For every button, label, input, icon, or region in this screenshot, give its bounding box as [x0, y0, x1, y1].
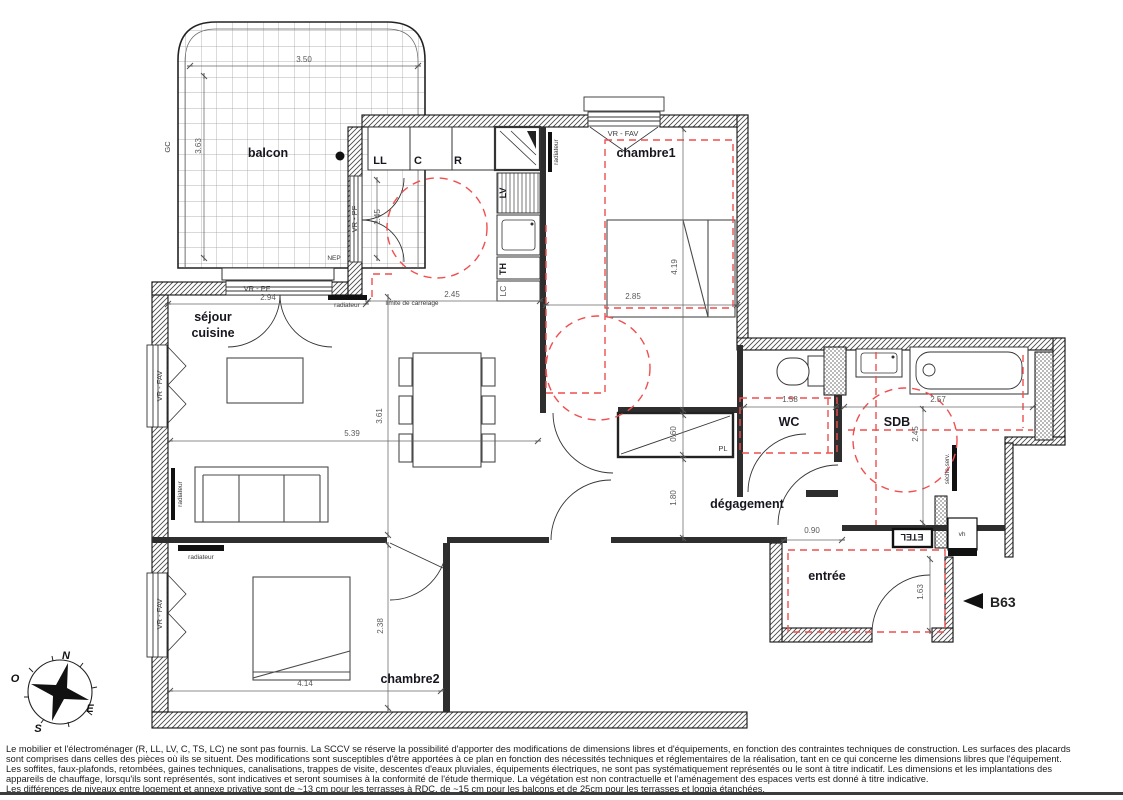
label-pl: PL: [718, 444, 727, 453]
label-lv: LV: [498, 188, 508, 199]
coffee-table: [227, 358, 303, 403]
unit-ref: B63: [990, 594, 1016, 610]
floor-plan-page: balcon séjour cuisine chambre1 chambre2 …: [0, 0, 1123, 800]
dim-sejour-window: 2.94: [260, 293, 276, 302]
dim-sdb-width: 2.57: [930, 395, 946, 404]
toilet-tank: [808, 356, 824, 386]
label-c: C: [414, 155, 422, 167]
room-label-entree: entrée: [808, 569, 846, 583]
label-radiateur-chambre2: radiateur: [188, 554, 214, 561]
dim-chambre2-depth: 2.38: [376, 618, 385, 634]
bottom-divider: [0, 792, 1123, 795]
dim-entree-depth: 1.63: [916, 584, 925, 600]
floor-plan-svg: balcon séjour cuisine chambre1 chambre2 …: [0, 0, 1123, 800]
toilet-bowl: [777, 358, 809, 385]
entrance-arrow-icon: [963, 593, 983, 609]
dim-carrelage: 2.45: [444, 290, 460, 299]
dim-chambre2-width: 4.14: [297, 679, 313, 688]
label-r: R: [454, 155, 462, 167]
label-limite-carrelage: limite de carrelage: [385, 300, 438, 307]
unit-marker: B63: [963, 593, 1016, 610]
dim-kitchen-bay: 2.45: [373, 209, 382, 225]
room-label-wc: WC: [779, 415, 800, 429]
compass-e: E: [86, 703, 94, 715]
label-lc: LC: [498, 286, 508, 297]
label-seche-serviettes: sèche-serv.: [945, 453, 951, 484]
disclaimer-line: appareils de chauffage, lorsqu'ils sont …: [6, 774, 1118, 784]
label-vrfav-chambre1: VR - FAV: [608, 129, 639, 138]
disclaimer-line: Le mobilier et l'électroménager (R, LL, …: [6, 744, 1118, 754]
room-label-degagement: dégagement: [710, 497, 784, 511]
room-label-sdb: SDB: [884, 415, 910, 429]
label-radiateur-chambre1: radiateur: [553, 138, 560, 164]
dim-sejour-width: 5.39: [344, 429, 360, 438]
room-label-chambre1: chambre1: [616, 146, 675, 160]
compass-s: S: [34, 723, 42, 735]
label-gc: GC: [163, 141, 172, 153]
compass-n: N: [62, 650, 71, 662]
label-nep: NEP: [327, 255, 340, 262]
disclaimer-line: sont comprises dans celles des pièces où…: [6, 754, 1118, 764]
label-ll: LL: [373, 155, 387, 167]
towel-radiator: [952, 445, 957, 491]
room-label-cuisine: cuisine: [191, 326, 234, 340]
label-radiateur-sejour-gauche: radiateur: [177, 480, 184, 506]
dim-chambre1-width: 2.85: [625, 292, 641, 301]
label-etel: ETEL: [900, 532, 924, 542]
room-label-sejour: séjour: [194, 310, 232, 324]
dim-wc-width: 1.58: [782, 395, 798, 404]
dim-entree-passage: 0.90: [804, 526, 820, 535]
label-radiateur-sejour-haut: radiateur: [334, 302, 360, 309]
room-label-balcon: balcon: [248, 146, 288, 160]
rainwater-pipe-icon: [336, 152, 345, 161]
dim-sejour-depth: 3.61: [375, 408, 384, 424]
room-label-chambre2: chambre2: [380, 672, 439, 686]
dining-table: [413, 353, 481, 467]
dim-degagement: 1.80: [669, 490, 678, 506]
dim-placard-depth: 0.60: [669, 426, 678, 442]
compass-rose-icon: N E S O: [11, 650, 97, 735]
compass-o: O: [11, 673, 20, 685]
bathtub: [910, 347, 1028, 394]
kitchen-sink: [497, 215, 540, 255]
label-vh: vh: [959, 531, 966, 538]
disclaimer-line: Les soffites, faux-plafonds, retombées, …: [6, 764, 1118, 774]
dim-chambre1-length: 4.19: [670, 259, 679, 275]
label-vrfav-sejour: VR - FAV: [155, 371, 164, 402]
duct-shaft: [935, 496, 947, 548]
dim-balcon-width: 3.50: [296, 55, 312, 64]
duct-shaft: [824, 347, 846, 395]
duct-shaft: [1035, 352, 1053, 440]
label-vrfav-chambre2: VR - FAV: [155, 599, 164, 630]
dim-sdb-depth: 2.45: [911, 426, 920, 442]
sanitary-fixtures: [777, 347, 1028, 394]
dim-balcon-depth: 3.63: [194, 138, 203, 154]
label-th: TH: [498, 263, 508, 275]
legal-disclaimer: Le mobilier et l'électroménager (R, LL, …: [6, 744, 1118, 794]
label-vrpf-cuisine: VR - PF: [350, 205, 359, 232]
label-vrpf-sejour: VR - PF: [244, 284, 271, 293]
